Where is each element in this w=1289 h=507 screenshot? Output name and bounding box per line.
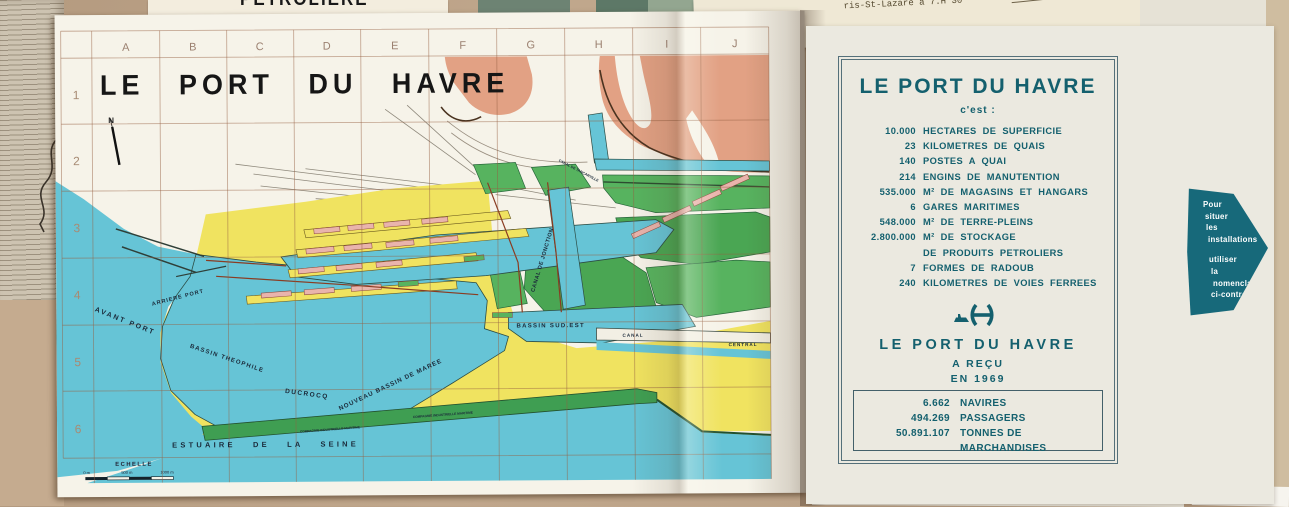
grid-row-4: 4 — [74, 288, 81, 302]
grid-col-g: G — [526, 39, 535, 51]
typed-text-fragment: ris-St-Lazare à 7.H 30 — [843, 0, 962, 11]
grid-row-1: 1 — [73, 88, 80, 102]
stat-label: M² DE MAGASINS ET HANGARS — [923, 185, 1114, 200]
stat-row: 10.000HECTARES DE SUPERFICIE — [842, 124, 1114, 139]
arrow-text-line: installations — [1187, 234, 1268, 246]
stat-label: M² DE STOCKAGE — [923, 230, 1114, 245]
grid-col-i: I — [665, 39, 668, 51]
stat-row: DE PRODUITS PETROLIERS — [842, 246, 1114, 261]
received-stats-box: 6.662NAVIRES 494.269PASSAGERS 50.891.107… — [853, 390, 1103, 451]
grid-column-letters: A B C D E F G H I J — [122, 38, 737, 54]
received-row: 50.891.107TONNES DE MARCHANDISES — [854, 426, 1102, 456]
stat-label: KILOMETRES DE QUAIS — [923, 139, 1114, 154]
stat-label: KILOMETRES DE VOIES FERREES — [923, 276, 1114, 291]
grid-row-5: 5 — [74, 355, 81, 369]
table-surface — [0, 300, 64, 506]
stat-row: 240KILOMETRES DE VOIES FERREES — [842, 276, 1114, 291]
scale-0: 0 m — [83, 470, 90, 475]
grid-col-d: D — [323, 41, 331, 53]
stat-label: POSTES A QUAI — [923, 154, 1114, 169]
stats-panel-border: LE PORT DU HAVRE c'est : 10.000HECTARES … — [838, 56, 1118, 464]
label-central: CENTRAL — [729, 342, 758, 347]
port-map-graphic: N ECHELLE 0 m 500 m 1000 m A B C D E F G… — [55, 11, 808, 498]
stat-value: 548.000 — [842, 215, 916, 230]
grid-col-j: J — [732, 38, 738, 50]
port-autonome-logo — [842, 302, 1114, 333]
stat-value: 7 — [842, 261, 916, 276]
panel-subtitle: c'est : — [842, 105, 1114, 116]
stat-label: GARES MARITIMES — [923, 200, 1114, 215]
stat-value: 140 — [842, 154, 916, 169]
panel-title: LE PORT DU HAVRE — [842, 75, 1114, 99]
received-row: 494.269PASSAGERS — [854, 411, 1102, 426]
stat-label: M² DE TERRE-PLEINS — [923, 215, 1114, 230]
grid-col-f: F — [459, 40, 466, 52]
photo-of-port-brochure: { "map": { "title": "LE PORT DU HAVRE", … — [0, 0, 1289, 506]
ship-h-logo-icon — [949, 302, 1007, 328]
stat-value — [842, 246, 916, 261]
stats-panel: LE PORT DU HAVRE c'est : 10.000HECTARES … — [841, 59, 1115, 461]
grid-col-b: B — [189, 41, 196, 53]
received-row: 6.662NAVIRES — [854, 396, 1102, 411]
north-compass: N — [108, 116, 119, 165]
grid-row-3: 3 — [73, 221, 80, 235]
received-value: 6.662 — [854, 396, 950, 411]
received-label: PASSAGERS — [960, 411, 1102, 426]
arrow-text-line: utiliser — [1188, 254, 1268, 266]
grid-col-a: A — [122, 42, 130, 54]
typed-underline — [1012, 0, 1128, 3]
received-line1: A REÇU — [842, 358, 1114, 370]
received-label: TONNES DE MARCHANDISES — [960, 426, 1102, 456]
label-bassin-sud-est: BASSIN SUD.EST — [516, 323, 585, 329]
stat-label: DE PRODUITS PETROLIERS — [923, 246, 1114, 261]
grid-row-6: 6 — [75, 422, 82, 436]
grid-col-c: C — [256, 41, 264, 53]
arrow-text-line: Pour — [1182, 199, 1268, 211]
stat-row: 7FORMES DE RADOUB — [842, 261, 1114, 276]
stat-label: FORMES DE RADOUB — [923, 261, 1114, 276]
received-line2: EN 1969 — [842, 373, 1114, 385]
arrow-text-line: la — [1190, 266, 1268, 278]
stat-row: 23KILOMETRES DE QUAIS — [842, 139, 1114, 154]
stat-value: 23 — [842, 139, 916, 154]
stat-value: 10.000 — [842, 124, 916, 139]
stat-label: ENGINS DE MANUTENTION — [923, 170, 1114, 185]
stat-row: 214ENGINS DE MANUTENTION — [842, 170, 1114, 185]
map-title: LE PORT DU HAVRE — [100, 67, 510, 101]
nomenclature-arrow-callout: Pour situer les installations utiliser l… — [1182, 186, 1268, 318]
received-title: LE PORT DU HAVRE — [842, 337, 1114, 353]
scale-title: ECHELLE — [115, 462, 153, 468]
arrow-text-line: situer — [1184, 211, 1268, 223]
stat-row: 6GARES MARITIMES — [842, 200, 1114, 215]
stat-value: 240 — [842, 276, 916, 291]
stat-row: 535.000M² DE MAGASINS ET HANGARS — [842, 185, 1114, 200]
stat-label: HECTARES DE SUPERFICIE — [923, 124, 1114, 139]
stat-value: 214 — [842, 170, 916, 185]
stat-value: 2.800.000 — [842, 230, 916, 245]
received-label: NAVIRES — [960, 396, 1102, 411]
label-canal: CANAL — [622, 333, 643, 338]
stat-value: 6 — [842, 200, 916, 215]
received-value: 50.891.107 — [854, 426, 950, 456]
arrow-text-line: ci-contre — [1190, 289, 1268, 301]
grid-col-h: H — [595, 39, 603, 51]
stat-row: 548.000M² DE TERRE-PLEINS — [842, 215, 1114, 230]
stat-row: 140POSTES A QUAI — [842, 154, 1114, 169]
stat-value: 535.000 — [842, 185, 916, 200]
statistics-page: LE PORT DU HAVRE c'est : 10.000HECTARES … — [806, 26, 1274, 504]
stats-list: 10.000HECTARES DE SUPERFICIE 23KILOMETRE… — [842, 124, 1114, 291]
arrow-text-line: les — [1185, 222, 1268, 234]
grid-col-e: E — [391, 40, 398, 52]
received-value: 494.269 — [854, 411, 950, 426]
scale-500: 500 m — [121, 470, 133, 475]
grid-row-2: 2 — [73, 154, 80, 168]
petroliere-title-fragment: PETROLIERE — [240, 0, 369, 11]
stat-row: 2.800.000M² DE STOCKAGE — [842, 230, 1114, 245]
arrow-text-line: nomenclature — [1192, 278, 1268, 290]
harbor-map-page: N ECHELLE 0 m 500 m 1000 m A B C D E F G… — [55, 11, 808, 498]
label-estuaire-de-la-seine: ESTUAIRE DE LA SEINE — [172, 439, 359, 449]
